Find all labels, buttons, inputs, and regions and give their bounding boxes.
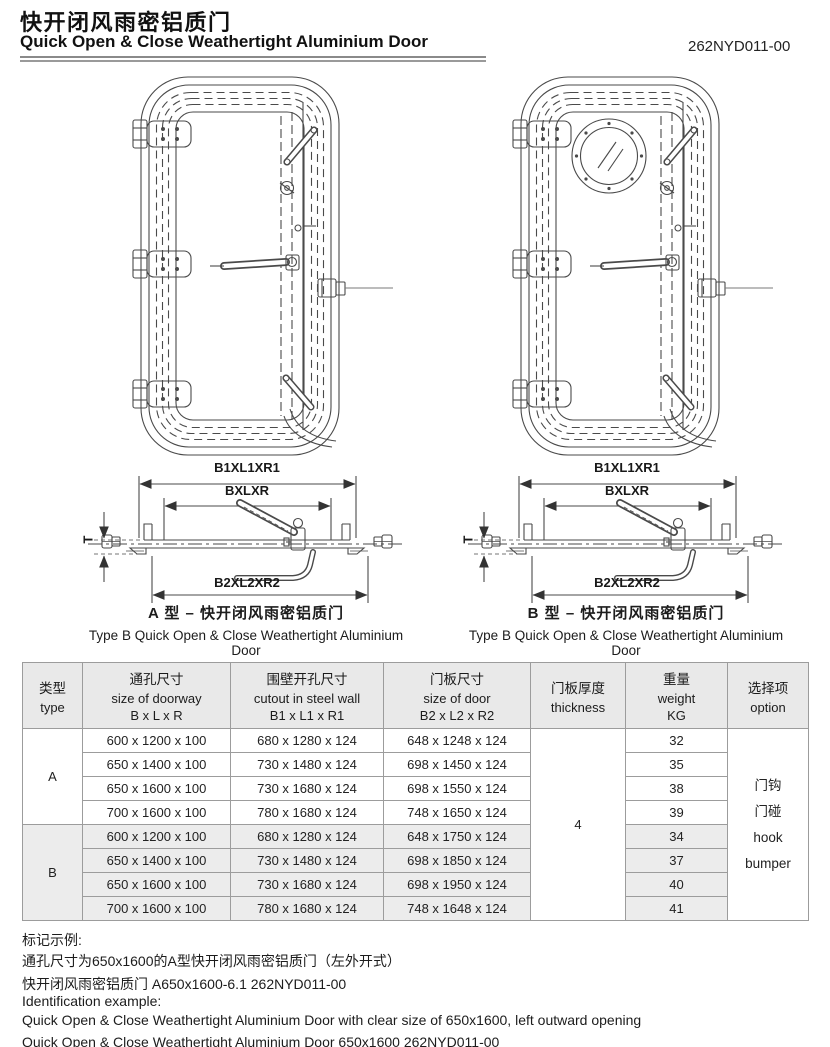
header-doorway-cn: 通孔尺寸 (83, 668, 230, 688)
porthole-window (572, 119, 646, 193)
cell-cutout: 730 x 1680 x 124 (231, 777, 384, 801)
header-doorway-en: size of doorway (83, 691, 230, 706)
header-cutout-en: cutout in steel wall (231, 691, 383, 706)
cell-cutout: 680 x 1280 x 124 (231, 825, 384, 849)
column-header-option: 选择项 option (728, 663, 809, 729)
caption-type-a: A 型 – 快开闭风雨密铝质门 Type B Quick Open & Clos… (76, 602, 416, 658)
cell-door: 698 x 1850 x 124 (384, 849, 531, 873)
cell-doorway: 650 x 1400 x 100 (83, 849, 231, 873)
header-cutout-dim: B1 x L1 x R1 (231, 708, 383, 723)
dimension-label-thickness: T (80, 536, 95, 544)
door-outline (133, 77, 339, 455)
cell-weight: 41 (626, 897, 728, 921)
column-header-weight: 重量 weight KG (626, 663, 728, 729)
cell-option: 门钩 门碰 hook bumper (728, 729, 809, 921)
table-row: A 600 x 1200 x 100 680 x 1280 x 124 648 … (23, 729, 809, 753)
section-type-a-drawing: B1XL1XR1 BXLXR B2XL2XR2 T (82, 456, 412, 606)
external-handle (318, 279, 393, 297)
cell-door: 748 x 1648 x 124 (384, 897, 531, 921)
header-door-cn: 门板尺寸 (384, 668, 530, 688)
cell-doorway: 700 x 1600 x 100 (83, 897, 231, 921)
column-header-type: 类型 type (23, 663, 83, 729)
note-cn-line1: 通孔尺寸为650x1600的A型快开闭风雨密铝质门（左外开式） (22, 951, 401, 971)
header-type-en: type (23, 700, 82, 715)
document-page: 快开闭风雨密铝质门 Quick Open & Close Weathertigh… (0, 0, 830, 1047)
cell-weight: 40 (626, 873, 728, 897)
cell-doorway: 600 x 1200 x 100 (83, 729, 231, 753)
document-number: 262NYD011-00 (688, 38, 790, 55)
cell-door: 698 x 1550 x 124 (384, 777, 531, 801)
note-en-line1: Quick Open & Close Weathertight Aluminiu… (22, 1012, 641, 1028)
column-header-door: 门板尺寸 size of door B2 x L2 x R2 (384, 663, 531, 729)
table-row: 700 x 1600 x 100 780 x 1680 x 124 748 x … (23, 801, 809, 825)
header-weight-cn: 重量 (626, 668, 727, 688)
caption-type-a-english: Type B Quick Open & Close Weathertight A… (76, 628, 416, 658)
header-thickness-cn: 门板厚度 (531, 677, 625, 697)
note-cn-title: 标记示例: (22, 930, 82, 950)
cell-doorway: 600 x 1200 x 100 (83, 825, 231, 849)
cell-weight: 38 (626, 777, 728, 801)
header-door-en: size of door (384, 691, 530, 706)
cell-door: 648 x 1248 x 124 (384, 729, 531, 753)
dimension-label-doorpanel: B2XL2XR2 (82, 575, 412, 590)
table-row: 650 x 1600 x 100 730 x 1680 x 124 698 x … (23, 777, 809, 801)
cell-doorway: 700 x 1600 x 100 (83, 801, 231, 825)
cell-doorway: 650 x 1400 x 100 (83, 753, 231, 777)
cell-cutout: 680 x 1280 x 124 (231, 729, 384, 753)
option-line: bumper (728, 851, 808, 877)
spec-table: 类型 type 通孔尺寸 size of doorway B x L x R 围… (22, 662, 809, 921)
cell-door: 698 x 1950 x 124 (384, 873, 531, 897)
cell-doorway: 650 x 1600 x 100 (83, 873, 231, 897)
header-door-dim: B2 x L2 x R2 (384, 708, 530, 723)
cell-door: 648 x 1750 x 124 (384, 825, 531, 849)
caption-type-a-chinese: A 型 – 快开闭风雨密铝质门 (76, 602, 416, 623)
cell-door: 698 x 1450 x 124 (384, 753, 531, 777)
option-line: hook (728, 825, 808, 851)
cell-weight: 37 (626, 849, 728, 873)
column-header-cutout: 围壁开孔尺寸 cutout in steel wall B1 x L1 x R1 (231, 663, 384, 729)
header-weight-unit: KG (626, 708, 727, 723)
cell-weight: 32 (626, 729, 728, 753)
caption-type-b: B 型 – 快开闭风雨密铝质门 Type B Quick Open & Clos… (456, 602, 796, 658)
cell-doorway: 650 x 1600 x 100 (83, 777, 231, 801)
header-weight-en: weight (626, 691, 727, 706)
dimension-label-doorway: BXLXR (462, 483, 792, 498)
cell-weight: 35 (626, 753, 728, 777)
dimension-label-cutout: B1XL1XR1 (462, 460, 792, 475)
table-row: 650 x 1600 x 100 730 x 1680 x 124 698 x … (23, 873, 809, 897)
column-header-doorway: 通孔尺寸 size of doorway B x L x R (83, 663, 231, 729)
header-cutout-cn: 围壁开孔尺寸 (231, 668, 383, 688)
caption-type-b-english: Type B Quick Open & Close Weathertight A… (456, 628, 796, 658)
cell-cutout: 730 x 1480 x 124 (231, 753, 384, 777)
option-line: 门碰 (728, 799, 808, 825)
door-outline (513, 77, 719, 455)
cell-cutout: 730 x 1680 x 124 (231, 873, 384, 897)
table-row: 700 x 1600 x 100 780 x 1680 x 124 748 x … (23, 897, 809, 921)
cell-door: 748 x 1650 x 124 (384, 801, 531, 825)
column-header-thickness: 门板厚度 thickness (531, 663, 626, 729)
note-en-title: Identification example: (22, 993, 161, 1009)
page-title-english: Quick Open & Close Weathertight Aluminiu… (20, 32, 428, 52)
cell-type-b: B (23, 825, 83, 921)
dimension-label-cutout: B1XL1XR1 (82, 460, 412, 475)
cell-cutout: 780 x 1680 x 124 (231, 801, 384, 825)
cell-cutout: 730 x 1480 x 124 (231, 849, 384, 873)
header-doorway-dim: B x L x R (83, 708, 230, 723)
table-row: 650 x 1400 x 100 730 x 1480 x 124 698 x … (23, 753, 809, 777)
dimension-label-doorpanel: B2XL2XR2 (462, 575, 792, 590)
note-cn-line2: 快开闭风雨密铝质门 A650x1600-6.1 262NYD011-00 (22, 974, 346, 994)
table-row: B 600 x 1200 x 100 680 x 1280 x 124 648 … (23, 825, 809, 849)
door-type-b-drawing (508, 76, 773, 456)
section-type-b-drawing: B1XL1XR1 BXLXR B2XL2XR2 T (462, 456, 792, 606)
table-row: 650 x 1400 x 100 730 x 1480 x 124 698 x … (23, 849, 809, 873)
title-divider (20, 56, 486, 62)
cell-thickness: 4 (531, 729, 626, 921)
door-type-a-drawing (128, 76, 393, 456)
option-line: 门钩 (728, 773, 808, 799)
dimension-label-thickness: T (460, 536, 475, 544)
header-type-cn: 类型 (23, 677, 82, 697)
header-thickness-en: thickness (531, 700, 625, 715)
dimension-label-doorway: BXLXR (82, 483, 412, 498)
table-header-row: 类型 type 通孔尺寸 size of doorway B x L x R 围… (23, 663, 809, 729)
header-option-en: option (728, 700, 808, 715)
external-handle (698, 279, 773, 297)
cell-type-a: A (23, 729, 83, 825)
header-option-cn: 选择项 (728, 677, 808, 697)
cell-weight: 34 (626, 825, 728, 849)
cell-weight: 39 (626, 801, 728, 825)
caption-type-b-chinese: B 型 – 快开闭风雨密铝质门 (456, 602, 796, 623)
cell-cutout: 780 x 1680 x 124 (231, 897, 384, 921)
note-en-line2: Quick Open & Close Weathertight Aluminiu… (22, 1034, 499, 1047)
